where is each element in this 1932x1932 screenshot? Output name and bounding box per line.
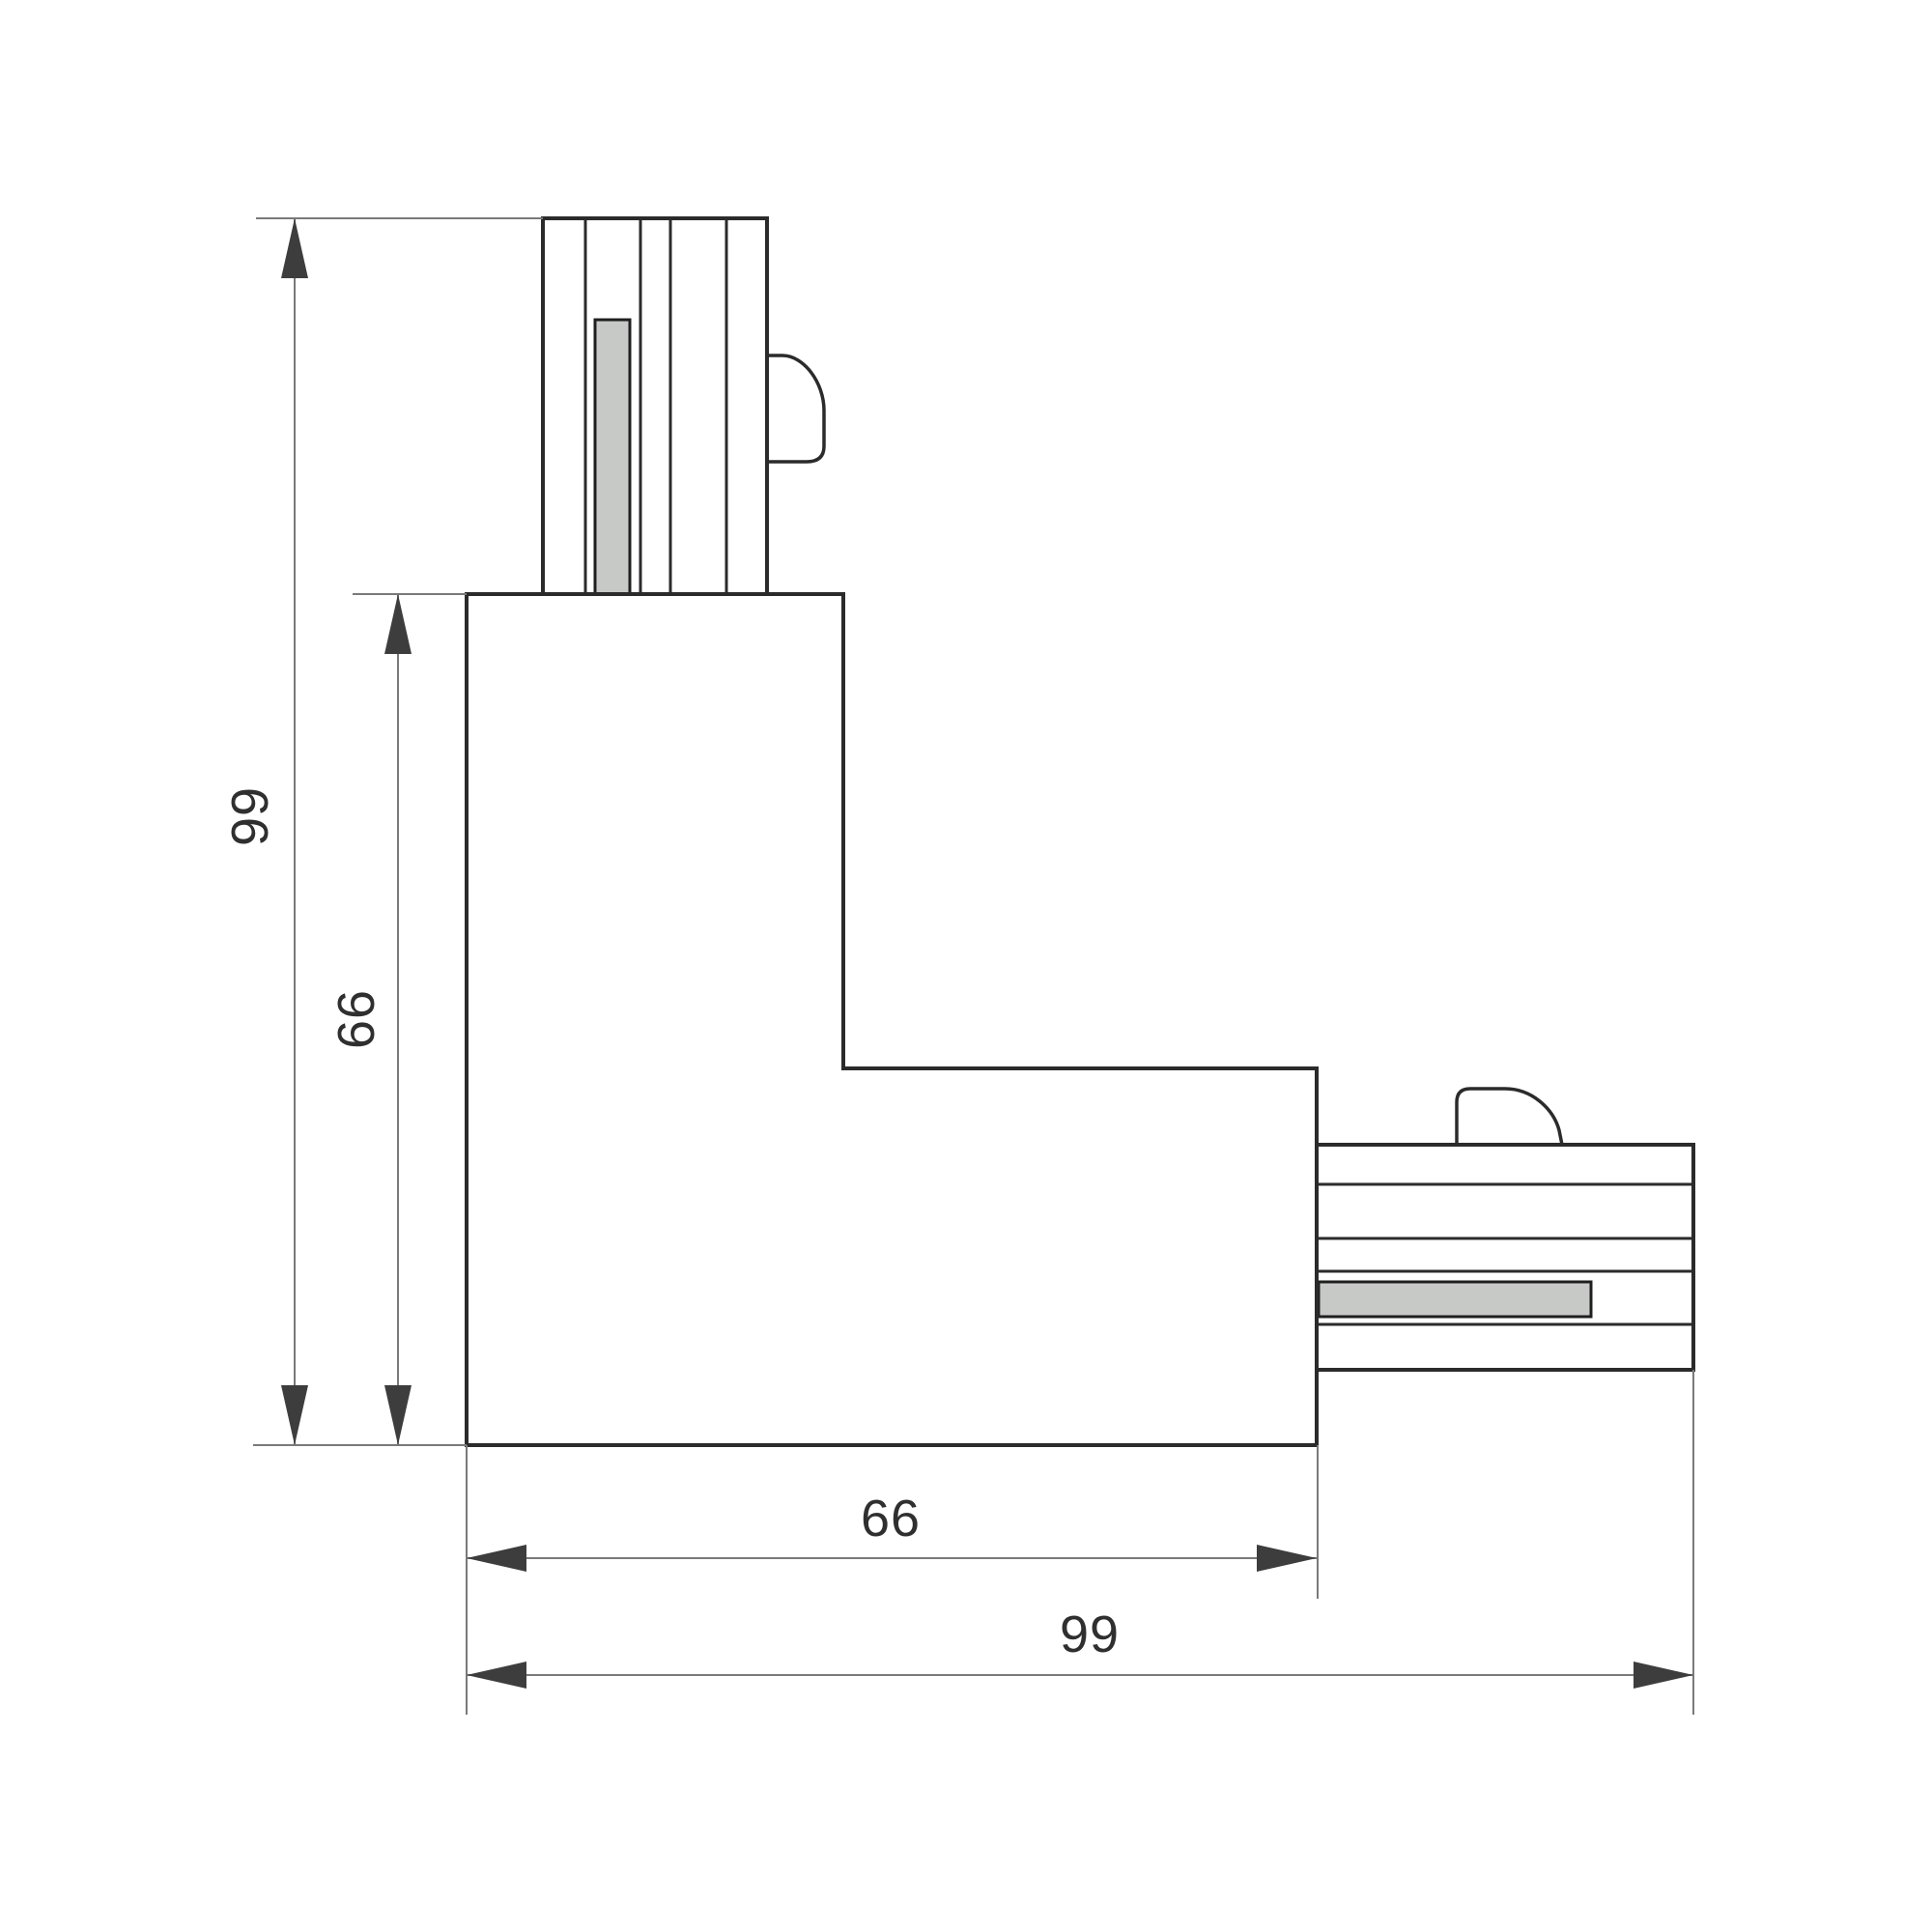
dim-label-body-width: 66	[861, 1489, 921, 1548]
arrowhead-right	[1634, 1662, 1693, 1689]
arrowhead-up	[281, 218, 308, 278]
arrowhead-left	[467, 1545, 526, 1572]
dimension-drawing	[0, 0, 1932, 1932]
dim-label-body-height: 66	[327, 989, 386, 1049]
dim-label-overall-height: 99	[220, 786, 280, 846]
right-connector-latch	[1457, 1089, 1562, 1145]
top-connector-body	[543, 218, 767, 594]
top-connector-contact-strip	[595, 320, 630, 594]
arrowhead-down	[384, 1385, 412, 1445]
arrowhead-down	[281, 1385, 308, 1445]
top-connector	[543, 218, 824, 594]
arrowhead-right	[1257, 1545, 1317, 1572]
arrowhead-left	[467, 1662, 526, 1689]
right-connector-body	[1317, 1145, 1693, 1370]
right-connector	[1317, 1089, 1693, 1370]
arrowhead-up	[384, 594, 412, 654]
top-connector-latch	[767, 355, 824, 462]
right-connector-contact-strip	[1319, 1282, 1591, 1317]
drawing-canvas: 99 66 66 99	[0, 0, 1932, 1932]
l-body	[467, 594, 1317, 1445]
dim-label-overall-width: 99	[1060, 1605, 1120, 1664]
